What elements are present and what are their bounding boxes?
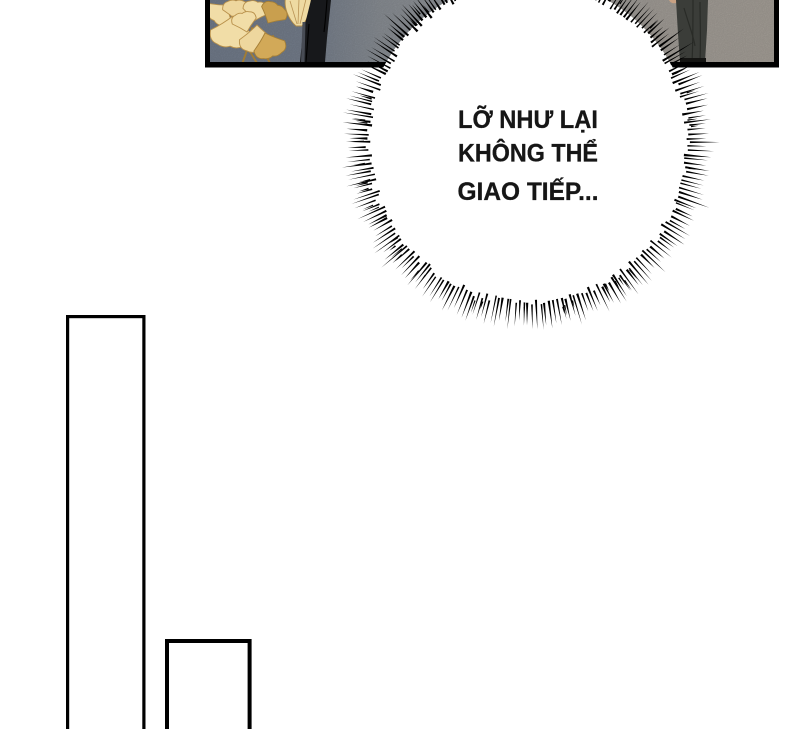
svg-text:KHÔNG THỂ: KHÔNG THỂ xyxy=(458,138,598,168)
svg-text:GIAO TIẾP...: GIAO TIẾP... xyxy=(458,177,599,206)
svg-text:LỠ NHƯ LẠI: LỠ NHƯ LẠI xyxy=(458,104,598,134)
